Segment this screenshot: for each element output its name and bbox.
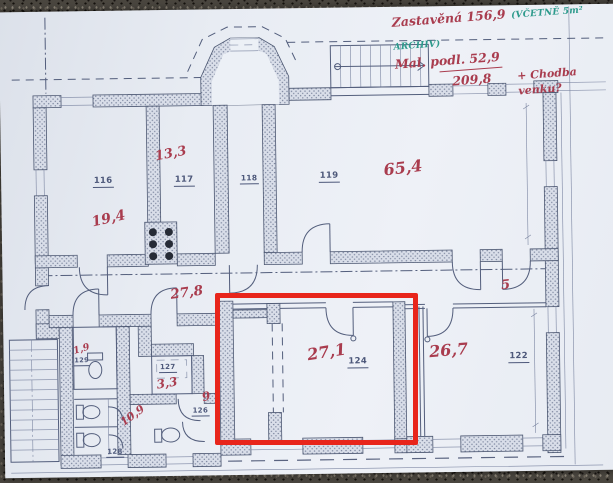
- bay-entrance: [187, 26, 298, 106]
- room-number-126: 126: [192, 406, 210, 416]
- room-122-walls: [405, 303, 548, 437]
- dimension-lines: [523, 103, 539, 433]
- room-area-122: 26,7: [428, 339, 468, 361]
- highlight-rectangle: [215, 293, 418, 445]
- hall-right-area: 5: [500, 277, 511, 293]
- room-number-116: 116: [93, 176, 114, 188]
- note-total: 209,8: [439, 66, 503, 91]
- note-total-question: + Chodba venku?: [516, 58, 613, 100]
- handwritten-notes: Zastavěná 156,9 (VČETNĚ 5m² ARCHIV) Mal.…: [391, 0, 613, 109]
- room-number-119: 119: [319, 171, 340, 183]
- note-built-area: Zastavěná 156,9: [391, 6, 506, 30]
- staircase-left: [9, 340, 59, 463]
- room-number-118: 118: [240, 173, 259, 184]
- room-number-128: 128: [106, 448, 124, 458]
- room-number-117: 117: [174, 175, 195, 187]
- room-number-122: 122: [508, 351, 529, 363]
- photo-background: 116 117 118 119 124 122 127 126 128 129 …: [0, 0, 613, 483]
- room-number-129: 129: [73, 356, 90, 366]
- chimney-block: [145, 222, 178, 264]
- room-number-127: 127: [159, 363, 177, 373]
